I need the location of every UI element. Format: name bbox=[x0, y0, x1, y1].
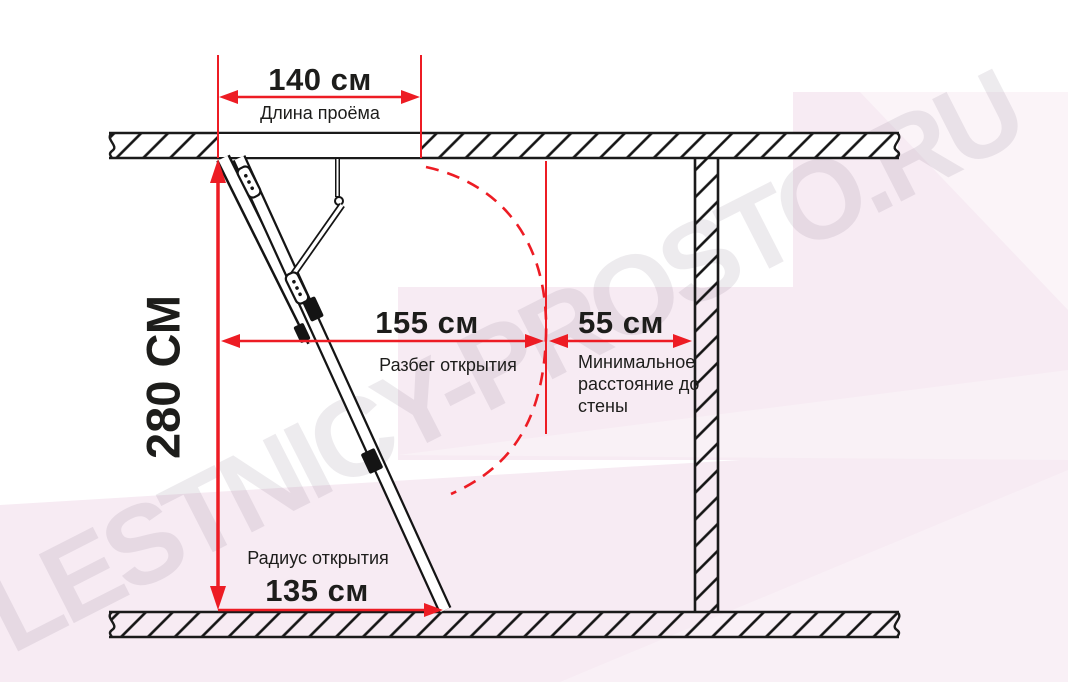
dim-opening-radius-label: Радиус открытия bbox=[247, 548, 389, 569]
floor-slab bbox=[109, 612, 899, 637]
dim-opening-length-value: 140 см bbox=[268, 62, 372, 98]
dim-opening-length-label: Длина проёма bbox=[260, 103, 380, 124]
dim-ceiling-height-value: 280 СМ bbox=[136, 295, 191, 459]
dim-opening-span-label: Разбег открытия bbox=[379, 355, 517, 376]
dim-opening-span-value: 155 см bbox=[375, 305, 479, 341]
folding-ladder bbox=[223, 158, 445, 610]
attic-ladder-dimension-diagram: LESTNICY-PROSTO.RU bbox=[0, 0, 1068, 682]
dim-opening-radius-value: 135 см bbox=[265, 573, 369, 609]
dim-wall-distance-value: 55 см bbox=[578, 305, 664, 341]
ceiling-opening bbox=[218, 133, 421, 158]
dim-wall-distance-label: Минимальное расстояние до стены bbox=[578, 352, 700, 418]
ceiling-slab bbox=[109, 133, 899, 158]
